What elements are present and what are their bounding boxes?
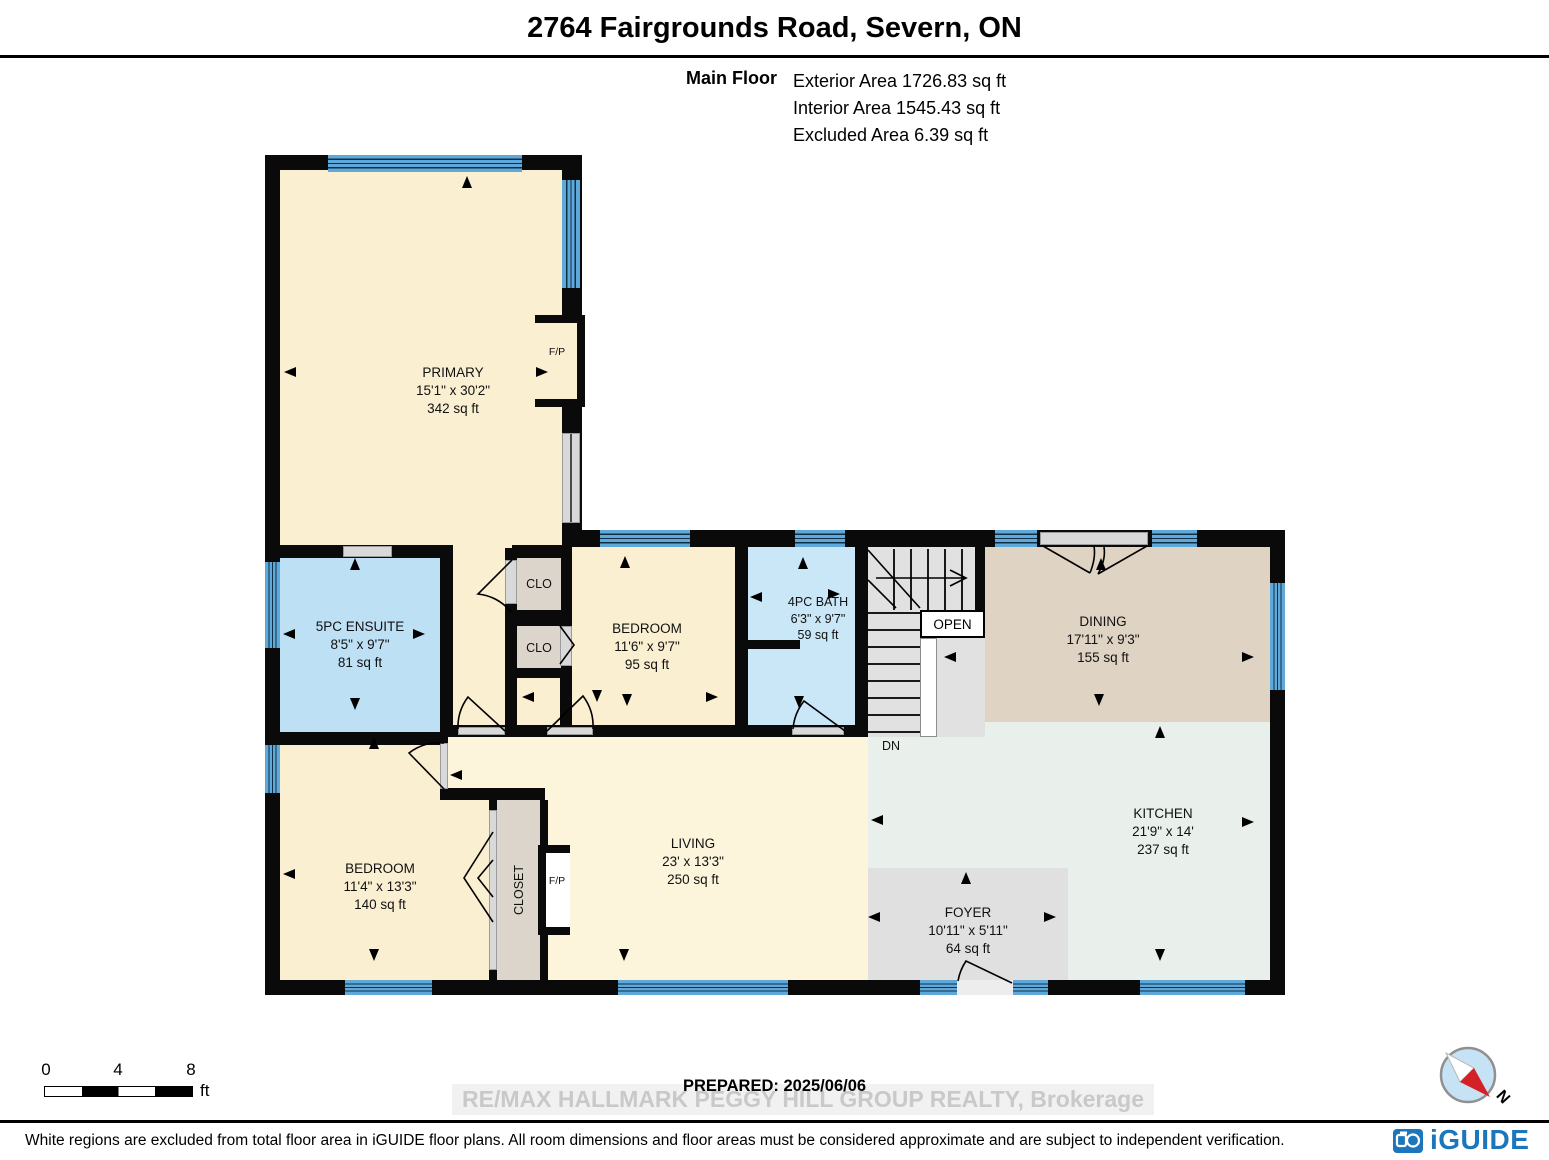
stair-tread — [944, 549, 946, 610]
stair-tread — [893, 549, 895, 610]
window — [995, 530, 1037, 547]
window — [328, 155, 522, 172]
stair-tread — [868, 663, 922, 665]
dimension-arrow — [1094, 694, 1104, 706]
room-name: DINING — [1066, 613, 1139, 631]
dimension-arrow — [369, 737, 379, 749]
dimension-arrow — [1044, 912, 1056, 922]
window — [562, 180, 580, 288]
window — [618, 980, 788, 995]
dimension-arrow — [871, 815, 883, 825]
excluded-area: Excluded Area 6.39 sq ft — [793, 122, 1006, 149]
stair-tread — [961, 549, 963, 610]
room-name: FOYER — [928, 904, 1008, 922]
iguide-logo-icon — [1392, 1127, 1424, 1154]
room-label-dining: DINING 17'11" x 9'3" 155 sq ft — [1066, 613, 1139, 666]
header-divider — [0, 55, 1549, 58]
closet-door — [489, 810, 497, 970]
room-name: BEDROOM — [612, 620, 682, 638]
dimension-arrow — [369, 949, 379, 961]
room-area: 59 sq ft — [788, 627, 848, 644]
closet-label: CLOSET — [512, 865, 526, 915]
room-area: 155 sq ft — [1066, 649, 1139, 667]
room-dimensions: 15'1" x 30'2" — [416, 382, 490, 400]
interior-area: Interior Area 1545.43 sq ft — [793, 95, 1006, 122]
stair-tread — [868, 731, 922, 733]
room-label-bath: 4PC BATH 6'3" x 9'7" 59 sq ft — [788, 594, 848, 644]
room-label-primary: PRIMARY 15'1" x 30'2" 342 sq ft — [416, 364, 490, 417]
wall-int — [265, 732, 448, 745]
room-dimensions: 10'11" x 5'11" — [928, 922, 1008, 940]
dimension-arrow — [413, 629, 425, 639]
room-label-bedroom-lower: BEDROOM 11'4" x 13'3" 140 sq ft — [343, 860, 416, 913]
stair-tread — [927, 549, 929, 610]
wall-int — [735, 547, 748, 732]
fireplace-primary-label: F/P — [549, 346, 565, 358]
door-french-dining — [1040, 532, 1148, 545]
dimension-arrow — [944, 652, 956, 662]
door-bedroom-lower — [440, 743, 448, 789]
closet-stub — [489, 800, 497, 810]
room-label-foyer: FOYER 10'11" x 5'11" 64 sq ft — [928, 904, 1008, 957]
room-bedroom-lower-ext — [440, 800, 490, 980]
stair-tread — [910, 549, 912, 610]
dimension-arrow — [1155, 949, 1165, 961]
dimension-arrow — [622, 694, 632, 706]
room-name: PRIMARY — [416, 364, 490, 382]
door-clo1 — [505, 560, 517, 604]
door-hall-a — [458, 727, 505, 735]
window — [265, 562, 280, 648]
dimension-arrow — [828, 589, 840, 599]
dimension-arrow — [619, 949, 629, 961]
window — [1013, 980, 1048, 995]
door-hall-b — [547, 727, 593, 735]
window — [1140, 980, 1245, 995]
dimension-arrow — [1242, 817, 1254, 827]
dimension-arrow — [350, 698, 360, 710]
window — [600, 530, 690, 547]
room-label-ensuite: 5PC ENSUITE 8'5" x 9'7" 81 sq ft — [316, 618, 405, 671]
room-dimensions: 17'11" x 9'3" — [1066, 631, 1139, 649]
dimension-arrow — [961, 872, 971, 884]
fireplace-primary — [535, 323, 577, 399]
page-title: 2764 Fairgrounds Road, Severn, ON — [0, 12, 1549, 45]
dimension-arrow — [522, 692, 534, 702]
open-label: OPEN — [933, 617, 971, 632]
room-label-living: LIVING 23' x 13'3" 250 sq ft — [662, 835, 724, 888]
door-ensuite — [343, 546, 392, 557]
door-front-opening — [957, 980, 1013, 995]
room-name: LIVING — [662, 835, 724, 853]
prepared-date: PREPARED: 2025/06/06 — [0, 1077, 1549, 1096]
wall-int — [505, 678, 517, 732]
dimension-arrow — [284, 367, 296, 377]
dimension-arrow — [450, 770, 462, 780]
dimension-arrow — [1155, 726, 1165, 738]
clo2-label: CLO — [526, 641, 552, 655]
stair-tread — [868, 697, 922, 699]
room-name: KITCHEN — [1132, 805, 1194, 823]
dimension-arrow — [798, 557, 808, 569]
room-label-bedroom-middle: BEDROOM 11'6" x 9'7" 95 sq ft — [612, 620, 682, 673]
room-dimensions: 11'4" x 13'3" — [343, 878, 416, 896]
dimension-arrow — [706, 692, 718, 702]
room-name: BEDROOM — [343, 860, 416, 878]
closet-stub — [489, 970, 497, 980]
area-stats: Exterior Area 1726.83 sq ft Interior Are… — [793, 68, 1006, 149]
floor-label: Main Floor — [500, 68, 777, 89]
dimension-arrow — [620, 556, 630, 568]
dimension-arrow — [536, 367, 548, 377]
clo1-label: CLO — [526, 577, 552, 591]
stair-tread — [868, 714, 922, 716]
dimension-arrow — [350, 558, 360, 570]
iguide-logo-text: iGUIDE — [1430, 1124, 1529, 1156]
wall-int — [440, 545, 453, 732]
dimension-arrow — [868, 912, 880, 922]
room-dimensions: 23' x 13'3" — [662, 853, 724, 871]
footer-disclaimer: White regions are excluded from total fl… — [25, 1132, 1285, 1150]
room-label-kitchen: KITCHEN 21'9" x 14' 237 sq ft — [1132, 805, 1194, 858]
room-dimensions: 6'3" x 9'7" — [788, 611, 848, 628]
stair-open-label-box: OPEN — [920, 610, 985, 638]
window — [345, 980, 432, 995]
stair-tread — [868, 646, 922, 648]
stair-tread — [868, 680, 922, 682]
room-area: 342 sq ft — [416, 400, 490, 418]
window — [1270, 583, 1285, 690]
door-bath — [792, 727, 844, 735]
door-clo2-bifold — [560, 626, 572, 666]
iguide-logo: iGUIDE — [1392, 1124, 1529, 1156]
footer-divider — [0, 1120, 1549, 1123]
stair-railing — [920, 638, 937, 737]
dimension-arrow — [283, 869, 295, 879]
room-area: 250 sq ft — [662, 871, 724, 889]
room-dimensions: 8'5" x 9'7" — [316, 636, 405, 654]
dimension-arrow — [1096, 558, 1106, 570]
dimension-arrow — [592, 690, 602, 702]
wall-int — [440, 788, 545, 800]
room-area: 81 sq ft — [316, 654, 405, 672]
stair-tread — [868, 629, 922, 631]
room-dimensions: 11'6" x 9'7" — [612, 638, 682, 656]
floor-plan-page: 2764 Fairgrounds Road, Severn, ON Main F… — [0, 0, 1549, 1160]
window — [1152, 530, 1197, 547]
dimension-arrow — [1242, 652, 1254, 662]
fireplace-living-label: F/P — [549, 875, 565, 887]
room-area: 237 sq ft — [1132, 841, 1194, 859]
exterior-area: Exterior Area 1726.83 sq ft — [793, 68, 1006, 95]
wall-int — [855, 547, 868, 737]
room-name: 5PC ENSUITE — [316, 618, 405, 636]
dimension-arrow — [750, 592, 762, 602]
fireplace-living — [546, 853, 570, 927]
room-area: 140 sq ft — [343, 896, 416, 914]
window — [795, 530, 845, 547]
door-primary-slider — [562, 433, 580, 523]
room-area: 64 sq ft — [928, 940, 1008, 958]
window — [265, 745, 280, 793]
stair-tread — [868, 612, 922, 614]
dimension-arrow — [462, 176, 472, 188]
room-dimensions: 21'9" x 14' — [1132, 823, 1194, 841]
dn-label: DN — [882, 739, 900, 753]
room-area: 95 sq ft — [612, 656, 682, 674]
wall-int — [975, 547, 985, 612]
dimension-arrow — [283, 629, 295, 639]
dimension-arrow — [794, 696, 804, 708]
window — [920, 980, 957, 995]
room-primary — [280, 170, 562, 547]
